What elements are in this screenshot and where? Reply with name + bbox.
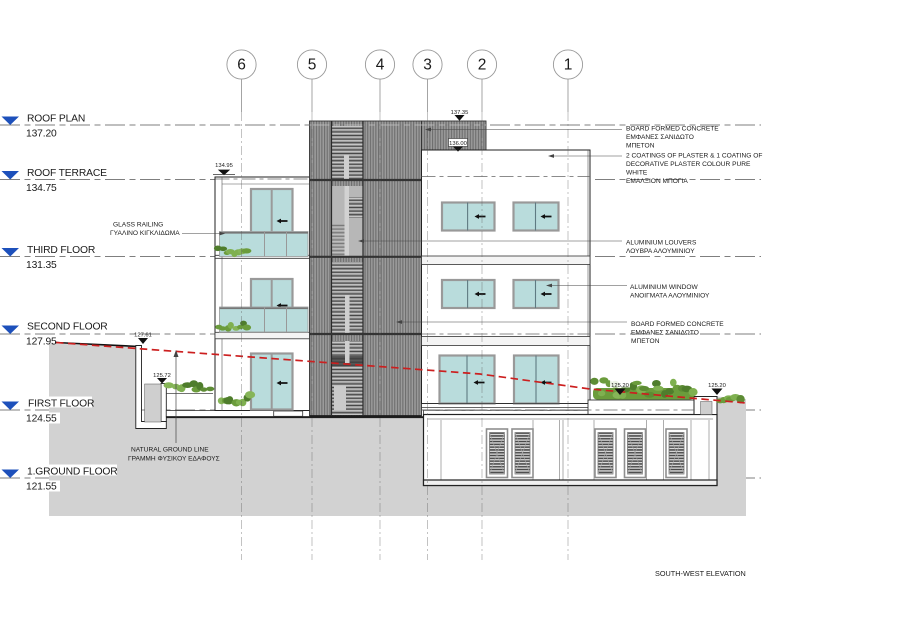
svg-text:ROOF TERRACE: ROOF TERRACE (27, 168, 107, 179)
svg-text:121.55: 121.55 (26, 482, 57, 493)
svg-text:137.20: 137.20 (26, 129, 57, 140)
svg-text:ROOF PLAN: ROOF PLAN (27, 114, 85, 125)
svg-text:NATURAL GROUND LINE: NATURAL GROUND LINE (131, 447, 209, 454)
svg-text:124.55: 124.55 (26, 414, 57, 425)
svg-text:ALUMINIUM WINDOW: ALUMINIUM WINDOW (630, 284, 699, 291)
svg-text:ΓΥΑΛΙΝΟ ΚΙΓΚΛΙΔΩΜΑ: ΓΥΑΛΙΝΟ ΚΙΓΚΛΙΔΩΜΑ (110, 230, 180, 237)
svg-text:ΑΝΟΙΓΜΑΤΑ ΑΛΟΥΜΙΝΙΟΥ: ΑΝΟΙΓΜΑΤΑ ΑΛΟΥΜΙΝΙΟΥ (630, 293, 710, 300)
svg-text:125.20: 125.20 (611, 383, 629, 389)
svg-text:ALUMINIUM LOUVERS: ALUMINIUM LOUVERS (626, 240, 697, 247)
svg-text:BOARD FORMED CONCRETE: BOARD FORMED CONCRETE (631, 321, 724, 328)
svg-text:FIRST FLOOR: FIRST FLOOR (28, 399, 94, 410)
svg-text:5: 5 (308, 57, 317, 74)
svg-text:6: 6 (237, 57, 246, 74)
svg-text:BOARD FORMED CONCRETE: BOARD FORMED CONCRETE (626, 126, 719, 133)
svg-text:2: 2 (478, 57, 487, 74)
svg-text:3: 3 (423, 57, 432, 74)
svg-text:ΜΠΕΤΟΝ: ΜΠΕΤΟΝ (626, 143, 655, 150)
svg-text:1: 1 (564, 57, 573, 74)
svg-text:1.GROUND FLOOR: 1.GROUND FLOOR (27, 467, 118, 478)
svg-text:DECORATIVE PLASTER COLOUR PURE: DECORATIVE PLASTER COLOUR PURE (626, 161, 751, 168)
svg-text:SECOND FLOOR: SECOND FLOOR (27, 322, 108, 333)
svg-text:134.95: 134.95 (215, 163, 233, 169)
svg-text:ΓΡΑΜΜΗ ΦΥΣΙΚΟΥ ΕΔΑΦΟΥΣ: ΓΡΑΜΜΗ ΦΥΣΙΚΟΥ ΕΔΑΦΟΥΣ (128, 456, 220, 463)
svg-text:127.61: 127.61 (134, 333, 152, 339)
svg-text:SOUTH-WEST ELEVATION: SOUTH-WEST ELEVATION (655, 569, 746, 578)
svg-text:GLASS RAILING: GLASS RAILING (113, 222, 163, 229)
svg-text:125.20: 125.20 (708, 383, 726, 389)
svg-text:4: 4 (376, 57, 385, 74)
svg-text:ΕΜΦΑΝΕΣ ΣΑΝΙΔΩΤΟ: ΕΜΦΑΝΕΣ ΣΑΝΙΔΩΤΟ (626, 134, 694, 141)
svg-text:2 COATINGS OF PLASTER & 1 COAT: 2 COATINGS OF PLASTER & 1 COATING OF (626, 153, 762, 160)
svg-text:ΛΟΥΒΡΑ ΑΛΟΥΜΙΝΙΟΥ: ΛΟΥΒΡΑ ΑΛΟΥΜΙΝΙΟΥ (626, 248, 695, 255)
svg-text:ΜΠΕΤΟΝ: ΜΠΕΤΟΝ (631, 338, 660, 345)
svg-text:ΕΜΑΛΞΙΟΝ ΜΠΟΓΙΑ: ΕΜΑΛΞΙΟΝ ΜΠΟΓΙΑ (626, 178, 688, 185)
svg-text:134.75: 134.75 (26, 183, 57, 194)
svg-text:131.35: 131.35 (26, 260, 57, 271)
svg-text:127.95: 127.95 (26, 337, 57, 348)
svg-text:ΕΜΦΑΝΕΣ ΣΑΝΙΔΩΤΟ: ΕΜΦΑΝΕΣ ΣΑΝΙΔΩΤΟ (631, 330, 699, 337)
svg-text:136.00: 136.00 (449, 141, 467, 147)
svg-text:WHITE: WHITE (626, 170, 648, 177)
svg-text:THIRD FLOOR: THIRD FLOOR (27, 245, 95, 256)
